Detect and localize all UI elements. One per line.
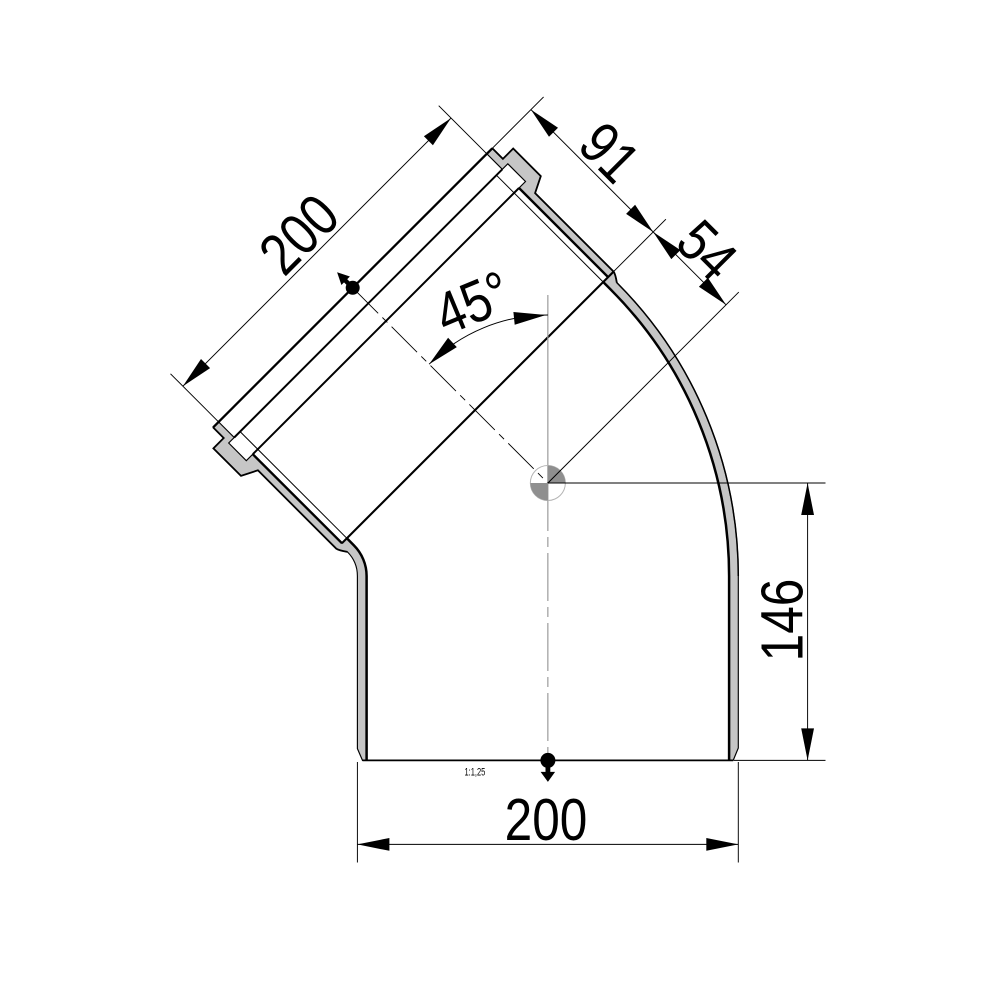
svg-text:146: 146 (749, 579, 815, 662)
svg-text:200: 200 (505, 787, 588, 853)
svg-text:1:1,25: 1:1,25 (465, 765, 486, 778)
